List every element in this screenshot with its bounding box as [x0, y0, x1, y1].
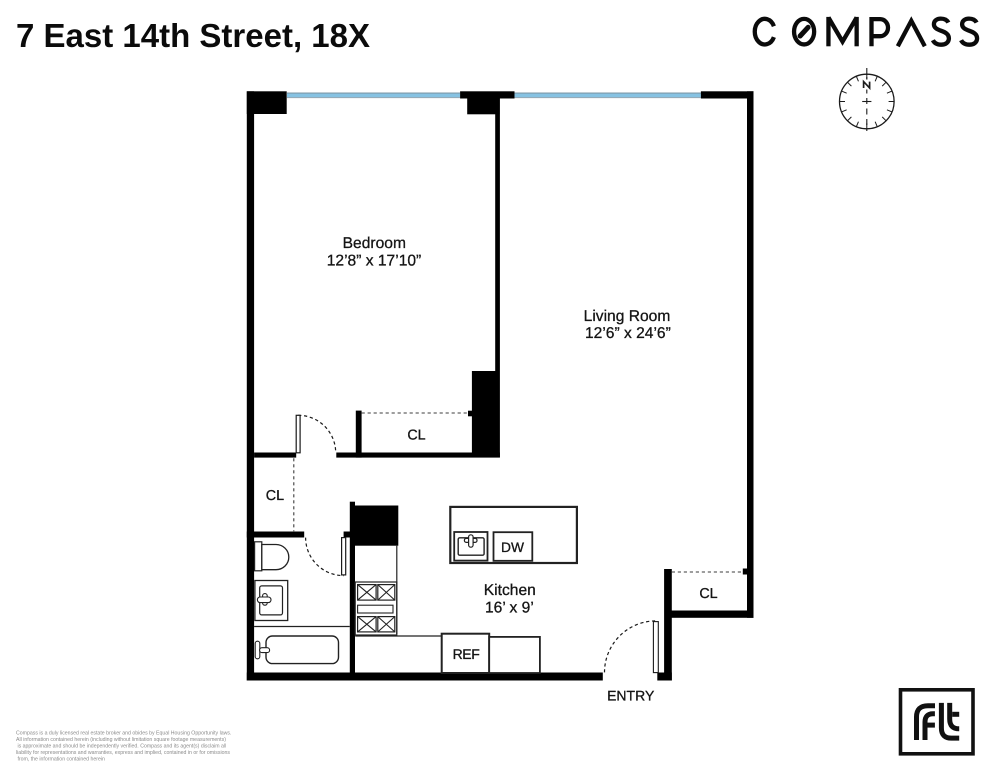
svg-text:DW: DW: [501, 540, 524, 555]
svg-text:16’ x 9’: 16’ x 9’: [485, 600, 534, 617]
svg-text:CL: CL: [407, 428, 425, 444]
svg-text:REF: REF: [453, 646, 480, 662]
svg-text:Kitchen: Kitchen: [484, 582, 536, 599]
svg-text:12’8” x 17’10”: 12’8” x 17’10”: [327, 253, 421, 270]
svg-text:CL: CL: [699, 586, 717, 602]
svg-text:Living Room: Living Room: [584, 308, 671, 325]
svg-text:12’6” x 24’6”: 12’6” x 24’6”: [585, 325, 671, 342]
svg-text:Bedroom: Bedroom: [343, 235, 406, 252]
svg-text:CL: CL: [266, 488, 284, 504]
svg-text:ENTRY: ENTRY: [607, 687, 655, 703]
